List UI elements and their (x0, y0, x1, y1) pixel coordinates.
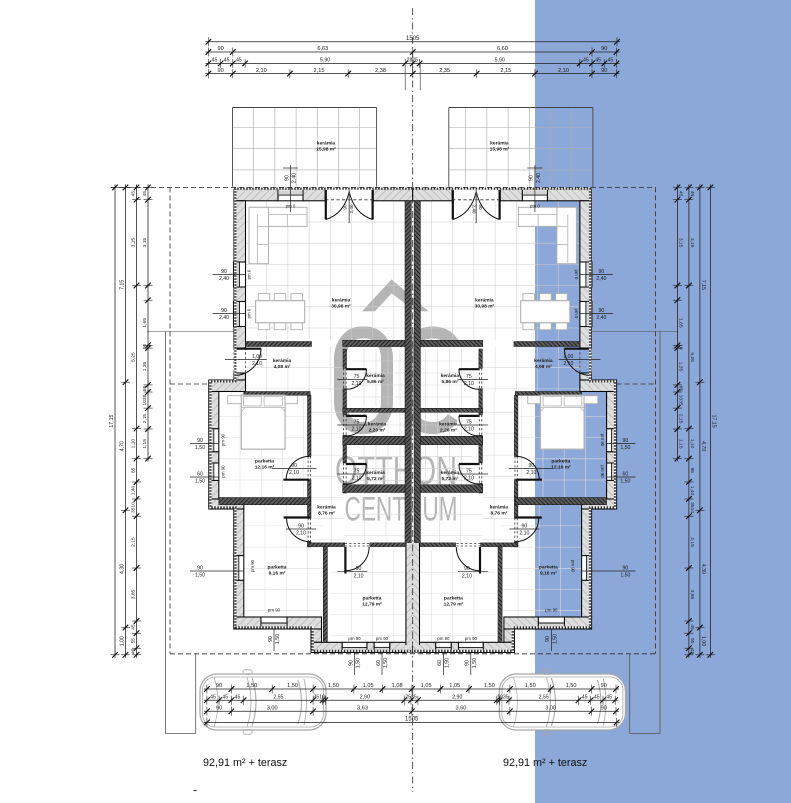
svg-text:pm 90: pm 90 (600, 434, 605, 447)
svg-text:10: 10 (142, 344, 148, 350)
svg-text:15,98 m²: 15,98 m² (490, 147, 510, 153)
svg-text:12,16 m²: 12,16 m² (551, 465, 571, 471)
svg-text:60: 60 (623, 472, 629, 478)
svg-text:5,86 m²: 5,86 m² (441, 379, 458, 385)
svg-text:2,40: 2,40 (219, 315, 229, 321)
svg-text:1,50: 1,50 (484, 683, 495, 689)
svg-text:2,10: 2,10 (351, 427, 361, 433)
svg-text:parketta: parketta (539, 565, 558, 571)
svg-text:2,55: 2,55 (539, 694, 549, 700)
svg-text:kerámia: kerámia (439, 422, 458, 428)
svg-text:2,40: 2,40 (596, 315, 606, 321)
svg-text:60: 60 (437, 660, 443, 666)
svg-text:4,08 m²: 4,08 m² (274, 364, 291, 370)
svg-text:1,05: 1,05 (449, 683, 460, 689)
svg-text:1,50: 1,50 (383, 658, 389, 668)
svg-text:45: 45 (689, 649, 695, 655)
svg-text:3510: 3510 (689, 502, 695, 513)
svg-text:1,50: 1,50 (472, 658, 478, 668)
svg-text:2,40: 2,40 (349, 204, 354, 213)
svg-text:1,40: 1,40 (689, 486, 695, 496)
svg-text:1035: 1035 (497, 694, 509, 700)
svg-text:2,40: 2,40 (596, 276, 606, 282)
svg-text:12,79 m²: 12,79 m² (362, 602, 382, 608)
svg-text:90: 90 (217, 46, 223, 52)
svg-text:3510: 3510 (131, 502, 137, 513)
svg-text:45: 45 (224, 58, 230, 64)
svg-text:4,70: 4,70 (120, 441, 126, 451)
svg-text:parketta: parketta (255, 459, 274, 465)
svg-text:75: 75 (466, 420, 472, 426)
svg-text:90: 90 (529, 463, 535, 469)
svg-text:1035: 1035 (677, 395, 683, 406)
svg-text:parketta: parketta (551, 459, 570, 465)
svg-text:75: 75 (354, 420, 360, 426)
svg-text:1,40: 1,40 (131, 485, 137, 495)
svg-text:1,50: 1,50 (444, 658, 450, 668)
svg-text:parketta: parketta (362, 596, 381, 602)
svg-text:2525: 2525 (405, 694, 417, 700)
svg-text:2,20 m²: 2,20 m² (440, 428, 457, 434)
svg-text:90: 90 (216, 706, 222, 712)
svg-text:90: 90 (342, 204, 347, 210)
svg-text:2,38: 2,38 (375, 68, 386, 74)
svg-text:1,50: 1,50 (566, 683, 577, 689)
svg-text:kerámia: kerámia (475, 298, 494, 304)
svg-text:2,15: 2,15 (689, 537, 695, 547)
svg-text:85: 85 (689, 468, 695, 474)
svg-text:5,25: 5,25 (689, 352, 695, 362)
svg-text:45: 45 (595, 58, 601, 64)
svg-text:2,55: 2,55 (273, 694, 283, 700)
svg-text:1,35: 1,35 (142, 361, 148, 371)
svg-text:1505: 1505 (405, 717, 419, 723)
svg-text:1,50: 1,50 (195, 573, 205, 579)
svg-text:kerámia: kerámia (273, 358, 292, 364)
svg-text:2,10: 2,10 (563, 361, 573, 367)
svg-text:3,85: 3,85 (689, 590, 695, 600)
svg-text:1,35: 1,35 (677, 362, 683, 372)
svg-text:kerámia: kerámia (317, 141, 336, 147)
svg-text:75: 75 (466, 374, 472, 380)
svg-text:5,86 m²: 5,86 m² (367, 379, 384, 385)
svg-text:90: 90 (348, 660, 354, 666)
svg-text:90: 90 (291, 463, 297, 469)
svg-text:3,60: 3,60 (455, 706, 466, 712)
svg-text:30,98 m²: 30,98 m² (331, 304, 351, 310)
svg-text:2,10: 2,10 (558, 68, 569, 74)
svg-text:pm 90: pm 90 (376, 636, 389, 641)
svg-text:2825: 2825 (407, 58, 419, 64)
svg-text:6,60: 6,60 (497, 46, 508, 52)
svg-text:4,08 m²: 4,08 m² (535, 364, 552, 370)
svg-text:5,25: 5,25 (131, 352, 137, 362)
svg-text:90: 90 (197, 566, 203, 572)
svg-text:parketta: parketta (267, 565, 286, 571)
svg-text:92,91 m² + terasz: 92,91 m² + terasz (503, 757, 587, 769)
svg-text:pm 90: pm 90 (250, 559, 255, 572)
svg-text:1,50: 1,50 (328, 683, 339, 689)
svg-text:pm 0: pm 0 (530, 204, 540, 209)
svg-text:CENTRUM: CENTRUM (345, 491, 458, 529)
svg-text:7,15: 7,15 (120, 280, 126, 290)
svg-text:90: 90 (601, 706, 607, 712)
svg-text:45: 45 (689, 624, 695, 630)
svg-text:2,35: 2,35 (439, 68, 450, 74)
svg-text:1,10: 1,10 (689, 439, 695, 449)
svg-text:1,50: 1,50 (246, 683, 257, 689)
svg-text:8,76 m²: 8,76 m² (318, 511, 335, 517)
svg-text:12,16 m²: 12,16 m² (255, 465, 275, 471)
svg-text:60: 60 (197, 472, 203, 478)
svg-text:1,50: 1,50 (525, 683, 536, 689)
svg-text:30,98 m²: 30,98 m² (475, 304, 495, 310)
svg-text:45: 45 (677, 191, 683, 197)
svg-text:1,08: 1,08 (392, 683, 403, 689)
svg-text:2,10: 2,10 (256, 68, 267, 74)
svg-text:1,50: 1,50 (356, 658, 362, 668)
svg-text:2,10: 2,10 (464, 476, 474, 482)
svg-text:2,10: 2,10 (464, 427, 474, 433)
svg-text:2,15: 2,15 (314, 68, 325, 74)
svg-text:90: 90 (623, 438, 629, 444)
svg-text:1,50: 1,50 (620, 445, 630, 451)
svg-text:45: 45 (210, 694, 216, 700)
svg-text:45: 45 (131, 624, 137, 630)
svg-text:pm 90: pm 90 (268, 608, 281, 613)
svg-text:1,50: 1,50 (195, 445, 205, 451)
svg-text:kerámia: kerámia (490, 141, 509, 147)
svg-text:parketta: parketta (444, 596, 463, 602)
svg-text:75: 75 (466, 469, 472, 475)
svg-text:pm 0: pm 0 (574, 309, 579, 319)
svg-text:1,00: 1,00 (120, 636, 126, 646)
svg-text:8,76 m²: 8,76 m² (490, 511, 507, 517)
svg-text:pm 90: pm 90 (545, 608, 558, 613)
svg-text:2,40: 2,40 (536, 173, 542, 183)
svg-text:2,90: 2,90 (452, 694, 462, 700)
svg-text:1,05: 1,05 (363, 683, 374, 689)
svg-text:17,15: 17,15 (109, 414, 115, 427)
svg-text:10: 10 (677, 344, 683, 350)
svg-text:pm 90: pm 90 (221, 465, 226, 478)
svg-text:90: 90 (217, 68, 223, 74)
svg-text:2,10: 2,10 (351, 381, 361, 387)
svg-text:2,40: 2,40 (472, 205, 477, 214)
svg-text:17,15: 17,15 (710, 415, 716, 428)
svg-text:60: 60 (376, 660, 382, 666)
svg-text:kerámia: kerámia (534, 358, 553, 364)
svg-text:1,50: 1,50 (552, 634, 558, 644)
svg-text:90: 90 (465, 660, 471, 666)
svg-text:2,15: 2,15 (142, 414, 148, 424)
svg-text:2,40: 2,40 (219, 276, 229, 282)
svg-text:90: 90 (599, 308, 605, 314)
svg-text:1,00: 1,00 (563, 354, 573, 360)
svg-text:kerámia: kerámia (368, 422, 387, 428)
svg-text:pm 90: pm 90 (465, 636, 478, 641)
svg-text:85: 85 (142, 385, 148, 391)
svg-text:90: 90 (601, 68, 607, 74)
svg-text:4,30: 4,30 (120, 564, 126, 574)
svg-text:2,90: 2,90 (360, 694, 370, 700)
svg-text:45: 45 (142, 191, 148, 197)
svg-text:90: 90 (356, 566, 362, 572)
svg-text:2,10: 2,10 (519, 531, 529, 537)
svg-text:90: 90 (268, 636, 274, 642)
svg-text:kerámia: kerámia (441, 470, 460, 476)
svg-text:3,15: 3,15 (131, 238, 137, 248)
svg-text:1,05: 1,05 (421, 683, 432, 689)
svg-text:75: 75 (354, 374, 360, 380)
svg-text:2,15: 2,15 (677, 414, 683, 424)
svg-text:1,50: 1,50 (620, 479, 630, 485)
svg-text:2,10: 2,10 (252, 361, 262, 367)
svg-text:90: 90 (221, 308, 227, 314)
svg-text:1,50: 1,50 (287, 683, 298, 689)
svg-text:90: 90 (522, 524, 528, 530)
svg-text:3,00: 3,00 (267, 706, 278, 712)
svg-text:1,50: 1,50 (195, 479, 205, 485)
svg-text:3,00: 3,00 (545, 706, 556, 712)
svg-text:kerámia: kerámia (366, 470, 385, 476)
svg-text:5,90: 5,90 (320, 58, 330, 64)
svg-text:55: 55 (131, 638, 137, 644)
svg-text:1,00: 1,00 (700, 636, 706, 646)
svg-text:90: 90 (601, 46, 607, 52)
svg-text:1505: 1505 (406, 36, 420, 42)
svg-text:90: 90 (284, 175, 290, 181)
svg-text:90: 90 (221, 269, 227, 275)
svg-text:75: 75 (354, 469, 360, 475)
svg-text:45: 45 (131, 649, 137, 655)
svg-text:2,10: 2,10 (351, 476, 361, 482)
svg-text:5,90: 5,90 (495, 58, 505, 64)
svg-text:pm 0: pm 0 (574, 270, 579, 280)
svg-text:90: 90 (599, 269, 605, 275)
svg-text:1,50: 1,50 (275, 634, 281, 644)
svg-text:45: 45 (689, 191, 695, 197)
svg-text:85: 85 (677, 386, 683, 392)
svg-text:kerámia: kerámia (332, 298, 351, 304)
svg-text:45: 45 (594, 694, 600, 700)
svg-text:1,10: 1,10 (131, 439, 137, 449)
svg-text:55: 55 (689, 638, 695, 644)
svg-text:7,15: 7,15 (700, 280, 706, 290)
svg-text:pm 90: pm 90 (600, 465, 605, 478)
svg-text:3,15: 3,15 (677, 238, 683, 248)
svg-text:9,16 m²: 9,16 m² (269, 571, 286, 577)
svg-text:pm 0: pm 0 (247, 269, 252, 279)
svg-text:15,98 m²: 15,98 m² (316, 147, 336, 153)
svg-text:1,15: 1,15 (677, 439, 683, 449)
svg-text:4,70: 4,70 (700, 441, 706, 451)
svg-text:1,15: 1,15 (142, 439, 148, 449)
svg-text:3510: 3510 (313, 694, 325, 700)
svg-text:2,10: 2,10 (526, 470, 536, 476)
svg-text:45: 45 (236, 58, 242, 64)
svg-text:45: 45 (212, 58, 218, 64)
svg-text:2,20 m²: 2,20 m² (369, 428, 386, 434)
svg-text:45: 45 (582, 694, 588, 700)
svg-text:90: 90 (298, 524, 304, 530)
svg-text:90: 90 (464, 566, 470, 572)
svg-text:pm 0: pm 0 (286, 204, 296, 209)
svg-text:2,10: 2,10 (353, 573, 363, 579)
svg-text:9,16 m²: 9,16 m² (540, 571, 557, 577)
svg-text:pm 90: pm 90 (348, 636, 361, 641)
svg-text:2,10: 2,10 (462, 573, 472, 579)
svg-text:2,10: 2,10 (296, 531, 306, 537)
svg-text:pm 0: pm 0 (247, 308, 252, 318)
svg-text:3,63: 3,63 (357, 706, 368, 712)
svg-text:2,15: 2,15 (500, 68, 511, 74)
svg-text:45: 45 (131, 191, 137, 197)
svg-text:12,79 m²: 12,79 m² (444, 602, 464, 608)
svg-text:45: 45 (608, 58, 614, 64)
svg-text:6,63: 6,63 (317, 46, 328, 52)
svg-text:pm 90: pm 90 (221, 433, 226, 446)
svg-text:4,30: 4,30 (700, 564, 706, 574)
svg-text:3,15: 3,15 (142, 238, 148, 248)
svg-text:90: 90 (529, 175, 535, 181)
svg-text:1,50: 1,50 (620, 573, 630, 579)
svg-text:kerámia: kerámia (317, 505, 336, 511)
svg-text:90: 90 (478, 204, 483, 210)
svg-text:45: 45 (222, 694, 228, 700)
svg-text:pm 90: pm 90 (570, 560, 575, 573)
svg-text:3,85: 3,85 (131, 589, 137, 599)
svg-text:90: 90 (601, 683, 607, 689)
svg-text:45: 45 (606, 694, 612, 700)
svg-text:kerámia: kerámia (366, 373, 385, 379)
svg-text:90: 90 (197, 438, 203, 444)
svg-text:1,65: 1,65 (142, 318, 148, 328)
svg-text:2,15: 2,15 (131, 537, 137, 547)
svg-text:1,00: 1,00 (252, 354, 262, 360)
svg-text:85: 85 (131, 467, 137, 473)
svg-text:90: 90 (545, 636, 551, 642)
svg-text:1,65: 1,65 (677, 318, 683, 328)
svg-text:2,10: 2,10 (464, 381, 474, 387)
svg-text:2,10: 2,10 (289, 470, 299, 476)
svg-text:90: 90 (216, 683, 222, 689)
svg-text:pm 90: pm 90 (437, 636, 450, 641)
svg-text:90: 90 (623, 566, 629, 572)
svg-text:45: 45 (583, 58, 589, 64)
svg-text:kerámia: kerámia (441, 373, 460, 379)
svg-text:5,72 m²: 5,72 m² (441, 476, 458, 482)
svg-text:1035: 1035 (142, 394, 148, 405)
svg-text:45: 45 (235, 694, 241, 700)
svg-text:92,91 m² + terasz: 92,91 m² + terasz (203, 757, 287, 769)
svg-text:kerámia: kerámia (490, 505, 509, 511)
svg-text:5,72 m²: 5,72 m² (367, 476, 384, 482)
svg-text:3,15: 3,15 (689, 238, 695, 248)
svg-text:2,40: 2,40 (292, 173, 298, 183)
